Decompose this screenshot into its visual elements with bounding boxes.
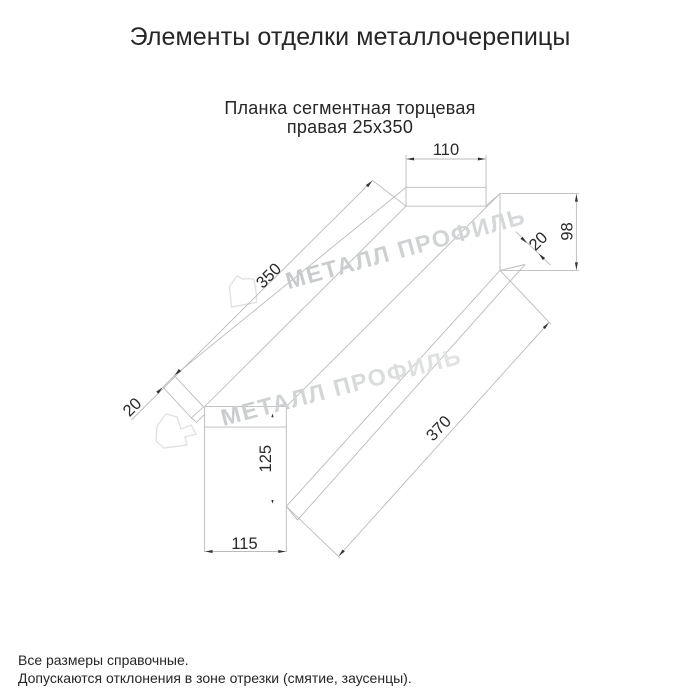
svg-text:350: 350 (253, 260, 285, 292)
svg-text:20: 20 (120, 395, 146, 421)
svg-text:98: 98 (559, 222, 577, 240)
svg-text:370: 370 (423, 412, 455, 444)
svg-text:20: 20 (526, 229, 552, 255)
svg-text:115: 115 (231, 535, 257, 553)
svg-text:МЕТАЛЛ ПРОФИЛЬ: МЕТАЛЛ ПРОФИЛЬ (283, 203, 529, 294)
svg-text:125: 125 (257, 445, 275, 473)
svg-text:110: 110 (433, 141, 459, 159)
